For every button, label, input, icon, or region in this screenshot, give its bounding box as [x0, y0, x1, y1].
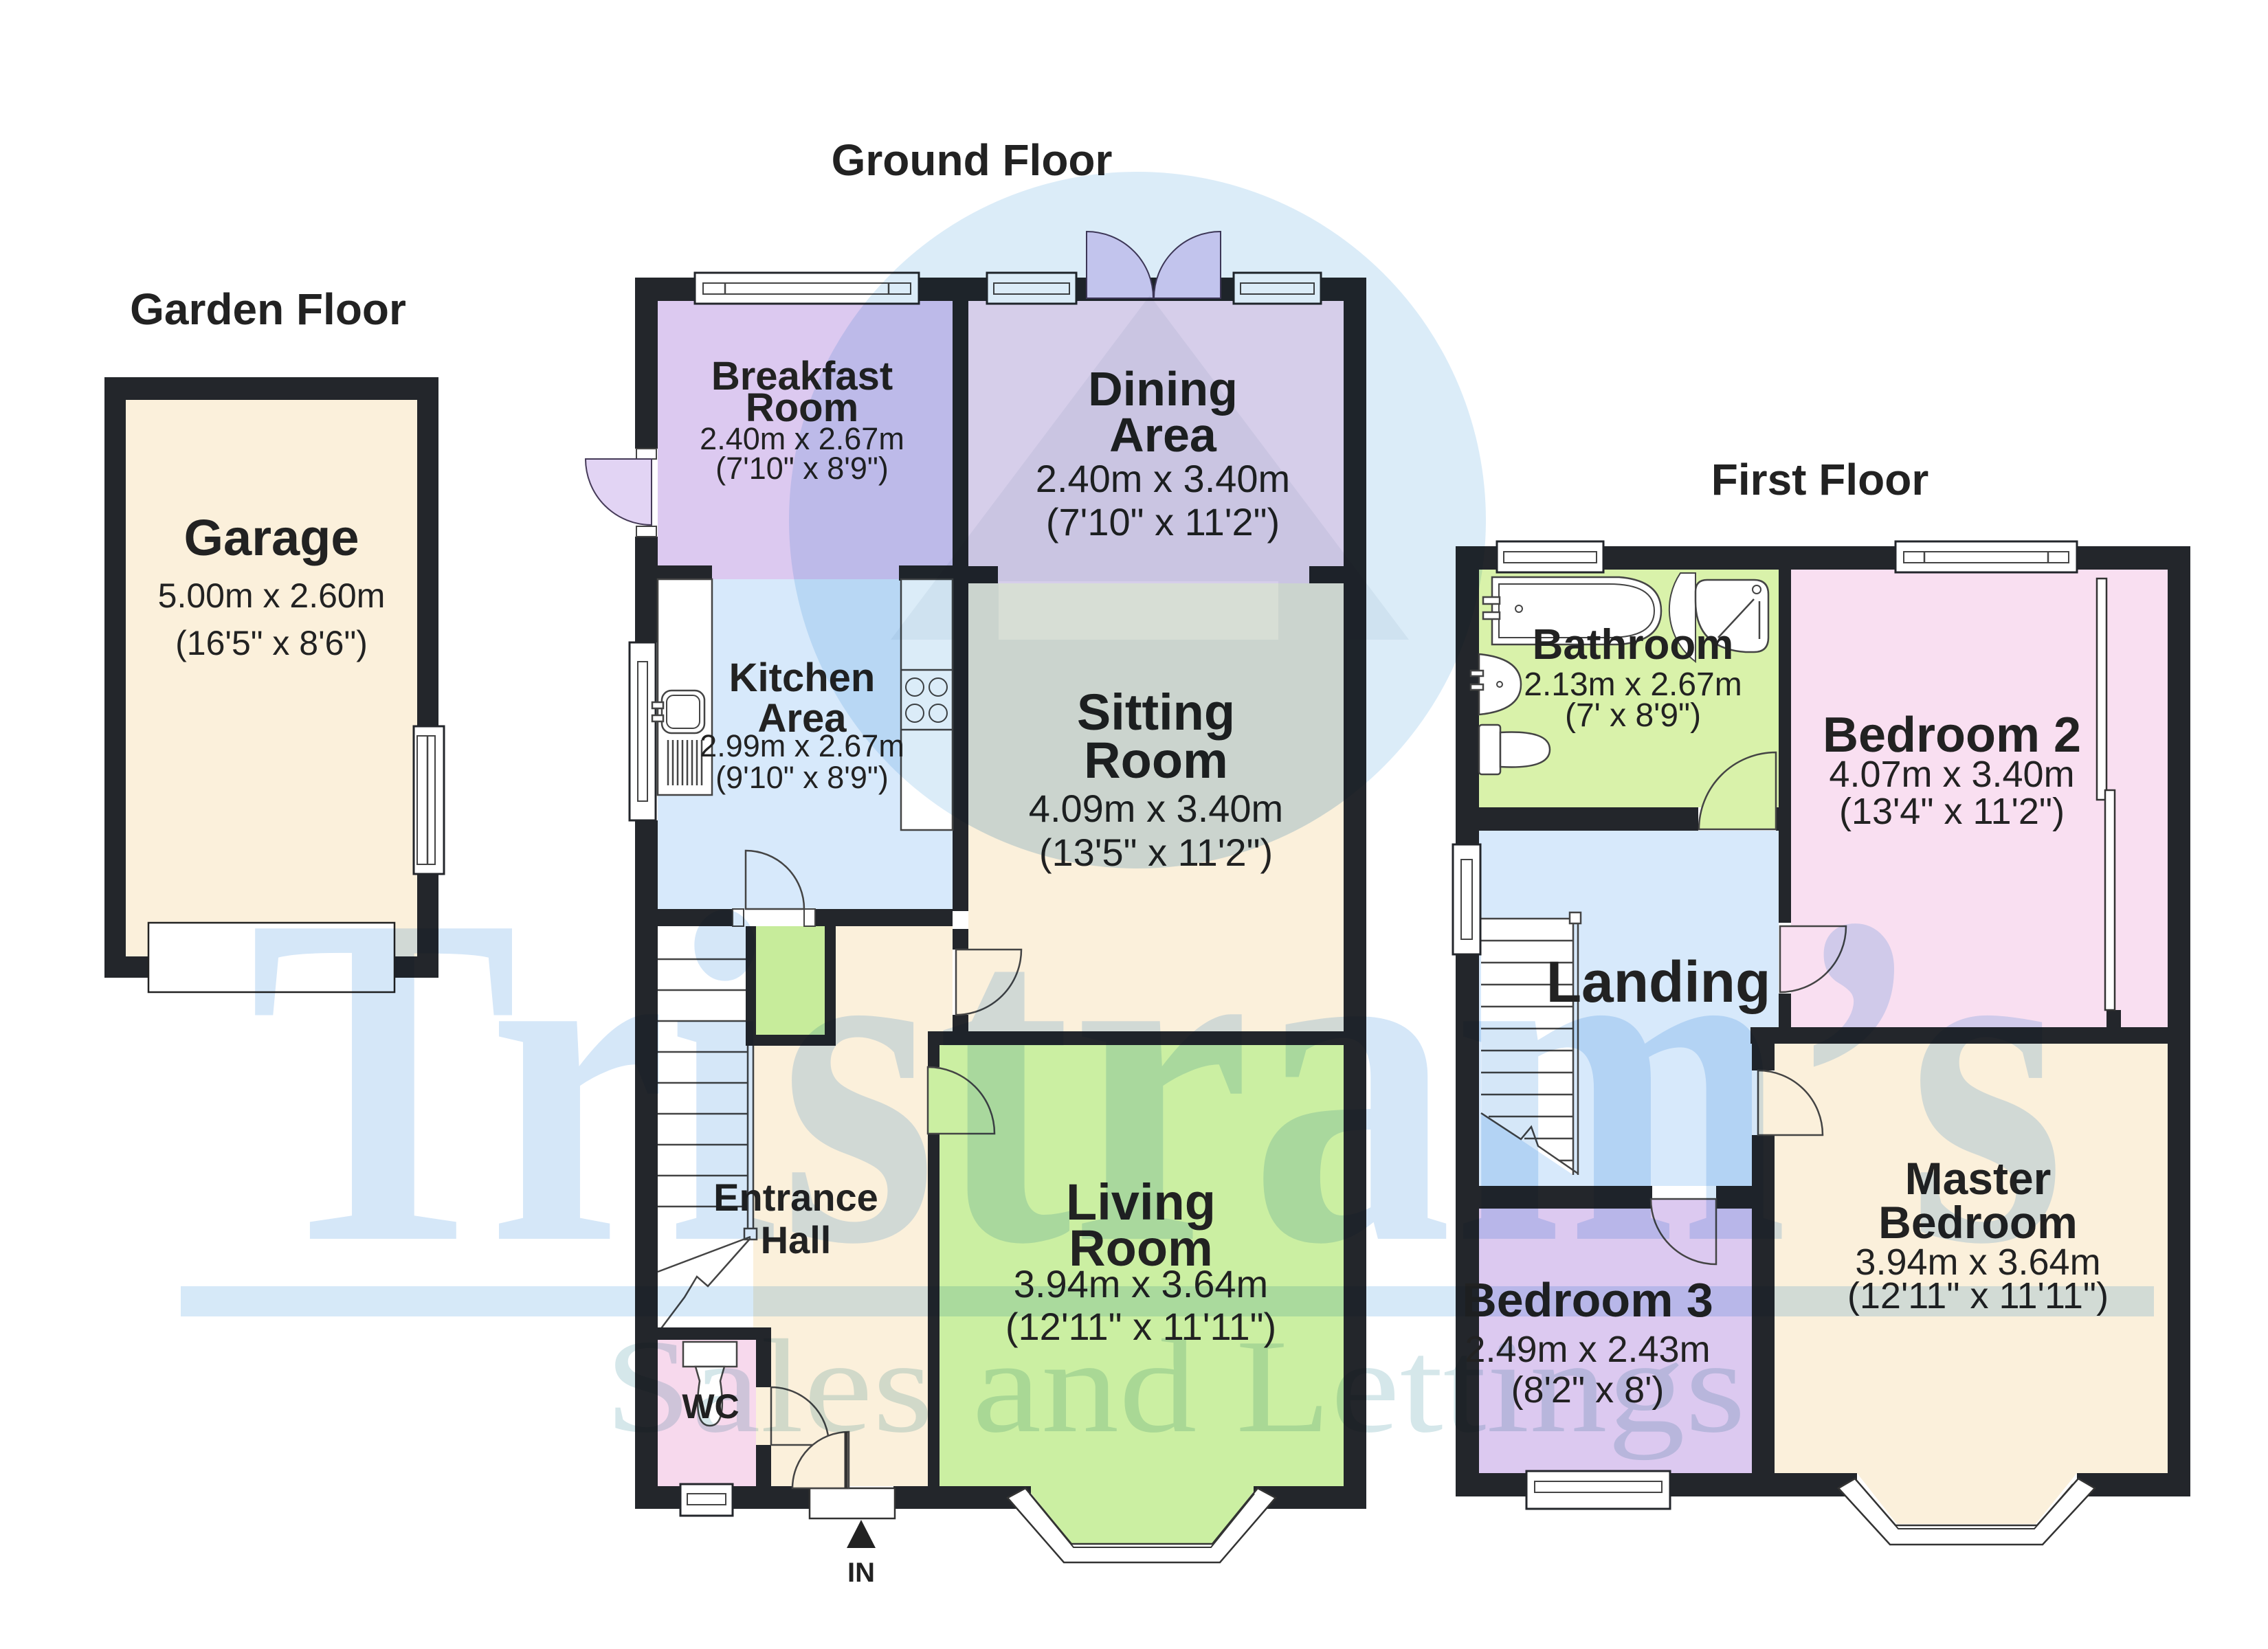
svg-text:Tristram’s: Tristram’s: [249, 817, 2065, 1342]
svg-text:Sales and Lettings: Sales and Lettings: [605, 1312, 1746, 1461]
